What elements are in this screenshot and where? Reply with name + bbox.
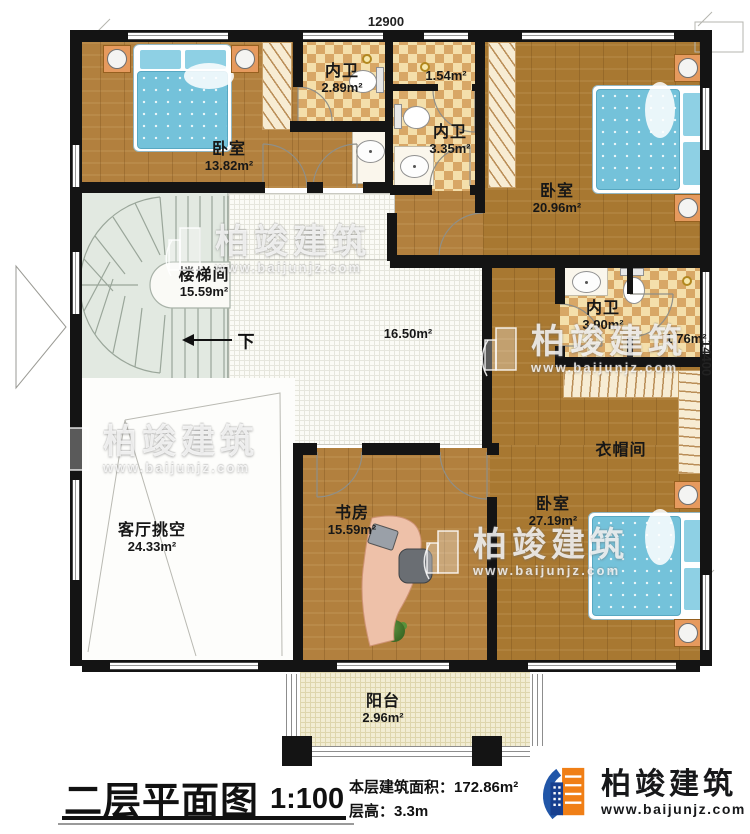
bed-top-left <box>133 44 232 152</box>
toilet-bowl <box>349 70 377 93</box>
floor-area-label: 本层建筑面积： <box>349 779 454 796</box>
wall <box>70 182 265 193</box>
brand-website: www.baijunjz.com <box>601 801 746 817</box>
balcony-railing <box>532 674 544 746</box>
window <box>702 88 710 150</box>
stairs-down-label: 下 <box>238 328 255 353</box>
window <box>72 252 80 314</box>
wall <box>362 443 440 455</box>
nightstand <box>674 54 702 82</box>
wall <box>390 84 438 91</box>
window <box>128 32 228 40</box>
wall <box>627 268 633 294</box>
wall <box>475 30 485 213</box>
wall <box>385 30 393 191</box>
window <box>528 662 676 670</box>
window <box>110 662 258 670</box>
wall <box>307 182 323 193</box>
shower-head-icon <box>420 62 430 72</box>
floor-vestibule <box>390 191 483 261</box>
wall <box>290 121 390 132</box>
balcony-door-window <box>337 662 449 670</box>
floor-stair-hall <box>76 188 228 382</box>
wall <box>293 30 303 87</box>
floor-suite-entry <box>490 262 560 448</box>
bed-top-right <box>592 85 707 194</box>
wall <box>390 255 712 268</box>
floor-balcony <box>300 672 530 746</box>
wall <box>482 268 492 448</box>
sink-basin <box>400 155 429 178</box>
toilet-tank <box>376 67 384 93</box>
nightstand <box>674 481 702 509</box>
nightstand <box>674 619 702 647</box>
floor-living-void <box>76 378 295 664</box>
nightstand <box>674 194 702 222</box>
bed-sheet-fold <box>645 509 675 565</box>
wardrobe-bedroom-top-right <box>488 42 516 188</box>
wall <box>293 443 317 455</box>
wall <box>390 185 432 195</box>
shower-head-icon <box>682 276 692 286</box>
pillow <box>139 49 182 70</box>
sink-basin <box>356 140 385 163</box>
column <box>472 736 502 766</box>
brand-logo: 柏竣建筑 www.baijunjz.com <box>536 763 746 823</box>
column <box>282 736 312 766</box>
brand-name: 柏竣建筑 <box>601 769 746 801</box>
window <box>702 575 710 650</box>
toilet-tank <box>394 104 402 129</box>
wall <box>555 357 712 367</box>
title-underline-thick <box>62 816 346 820</box>
wall <box>487 443 499 455</box>
window <box>424 32 468 40</box>
window <box>72 145 80 187</box>
title-underline-thin <box>58 823 354 825</box>
floor-plan-canvas: 卧室 13.82m² 内卫 2.89m² 1.54m² 内卫 3.35m² 卧室… <box>0 0 750 834</box>
window <box>303 32 383 40</box>
floor-hallway-upper <box>228 193 395 261</box>
dimension-right: 14400 <box>699 340 714 376</box>
floor-height-label: 层高： <box>349 803 394 820</box>
wall <box>293 455 303 664</box>
dimension-top: 12900 <box>368 14 404 29</box>
bed-sheet-fold <box>645 82 675 138</box>
window <box>72 480 80 580</box>
brand-text: 柏竣建筑 www.baijunjz.com <box>601 769 746 817</box>
floor-height-value: 3.3m <box>394 803 428 820</box>
wall <box>363 182 393 193</box>
plan-scale: 1:100 <box>270 783 344 816</box>
nightstand <box>103 45 131 73</box>
sink-basin <box>572 271 601 293</box>
cloakroom-rack-top <box>563 370 680 398</box>
shower-head-icon <box>362 54 372 64</box>
floor-area-value: 172.86m² <box>454 779 518 796</box>
bed-bottom-right <box>588 512 709 620</box>
wall <box>487 497 497 664</box>
bed-sheet-fold <box>184 63 234 89</box>
wall <box>555 268 565 304</box>
bay-window <box>16 266 66 388</box>
plant <box>383 620 405 642</box>
brand-logo-icon <box>536 763 592 823</box>
closet-bedroom-top-left <box>262 42 292 130</box>
nightstand <box>231 45 259 73</box>
floor-height-info: 层高：3.3m <box>349 800 428 821</box>
floor-area-info: 本层建筑面积：172.86m² <box>349 776 518 797</box>
window <box>522 32 674 40</box>
toilet-bowl <box>403 106 430 129</box>
wall <box>387 213 397 261</box>
